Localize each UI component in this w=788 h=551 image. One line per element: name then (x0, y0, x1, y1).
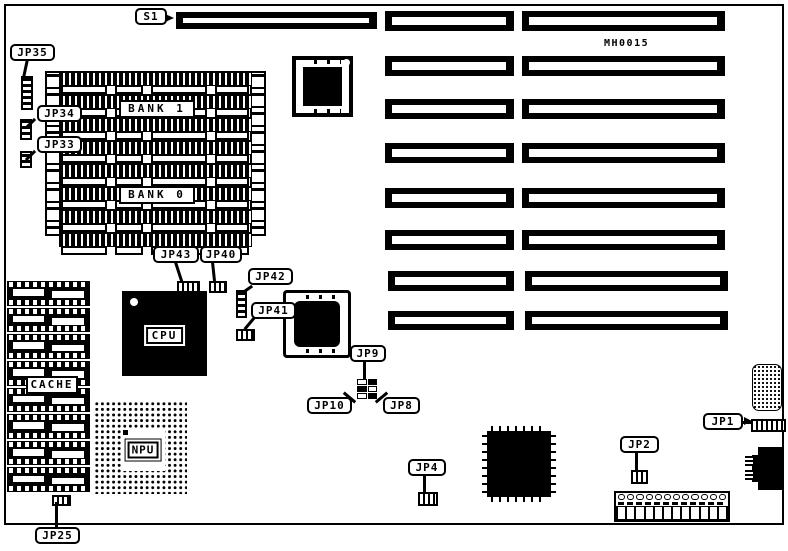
jumper-jp35 (21, 76, 33, 110)
expansion-slot (522, 56, 725, 76)
pointer-jp1-arrow (744, 417, 752, 425)
expansion-slot (522, 99, 725, 119)
label-jp4: JP4 (408, 459, 446, 476)
label-jp2: JP2 (620, 436, 659, 453)
label-bank1: BANK 1 (119, 100, 195, 118)
jumper-jp41 (236, 329, 255, 341)
npu-socket: NPU (93, 400, 187, 494)
label-jp41: JP41 (251, 302, 296, 319)
jumper-jp4 (418, 492, 438, 506)
label-jp42: JP42 (248, 268, 293, 285)
pin1-mark-icon (338, 296, 345, 303)
label-jp43: JP43 (153, 246, 199, 263)
expansion-slot (522, 188, 725, 208)
power-connector (614, 491, 730, 522)
pin1-mark-icon (130, 298, 138, 306)
expansion-slot (385, 99, 514, 119)
expansion-slot (522, 143, 725, 163)
label-jp35: JP35 (10, 44, 55, 61)
expansion-slot (388, 271, 514, 291)
expansion-slot (385, 56, 514, 76)
jumper-jp2 (631, 470, 648, 484)
expansion-slot (385, 143, 514, 163)
simm-sockets (45, 71, 266, 236)
label-cpu: CPU (146, 327, 184, 344)
jumper-block-jp9-jp10-jp8 (357, 379, 377, 399)
expansion-slot (525, 271, 728, 291)
plcc-chip-top (292, 56, 353, 117)
expansion-slot (385, 11, 514, 31)
pointer-jp2 (635, 453, 638, 470)
pointer-jp25 (55, 502, 58, 527)
label-jp9: JP9 (350, 345, 386, 362)
label-cache: CACHE (26, 376, 78, 394)
simm-rail-right (250, 71, 266, 236)
pin1-mark-icon (343, 59, 350, 66)
pin1-mark-icon (123, 430, 128, 435)
expansion-slot (388, 311, 514, 330)
motherboard-diagram: MH0015 S1 BANK 1 BANK 0 JP35 (0, 0, 788, 551)
label-npu: NPU (128, 441, 159, 458)
label-jp10: JP10 (307, 397, 352, 414)
label-bank0: BANK 0 (119, 186, 195, 204)
label-jp1: JP1 (703, 413, 743, 430)
jumper-jp40 (209, 281, 227, 293)
board-part-number: MH0015 (604, 38, 649, 49)
expansion-slot (385, 188, 514, 208)
slot-s1 (176, 12, 377, 29)
plcc-chip-mid (283, 290, 351, 358)
label-jp25: JP25 (35, 527, 80, 544)
cpu-chip: CPU (122, 291, 207, 376)
pointer-jp4 (423, 476, 426, 493)
keyboard-connector (752, 364, 782, 411)
label-jp34: JP34 (37, 105, 82, 122)
expansion-slot (522, 230, 725, 250)
expansion-slot (522, 11, 725, 31)
label-s1: S1 (135, 8, 167, 25)
jumper-jp1 (751, 419, 786, 432)
label-jp8: JP8 (383, 397, 420, 414)
qfp-chip (482, 426, 556, 502)
label-jp33: JP33 (37, 136, 82, 153)
label-jp40: JP40 (200, 246, 242, 263)
pointer-jp9 (363, 361, 366, 379)
simm-rows (59, 71, 252, 236)
expansion-slot (525, 311, 728, 330)
din-connector (745, 447, 783, 490)
expansion-slot (385, 230, 514, 250)
